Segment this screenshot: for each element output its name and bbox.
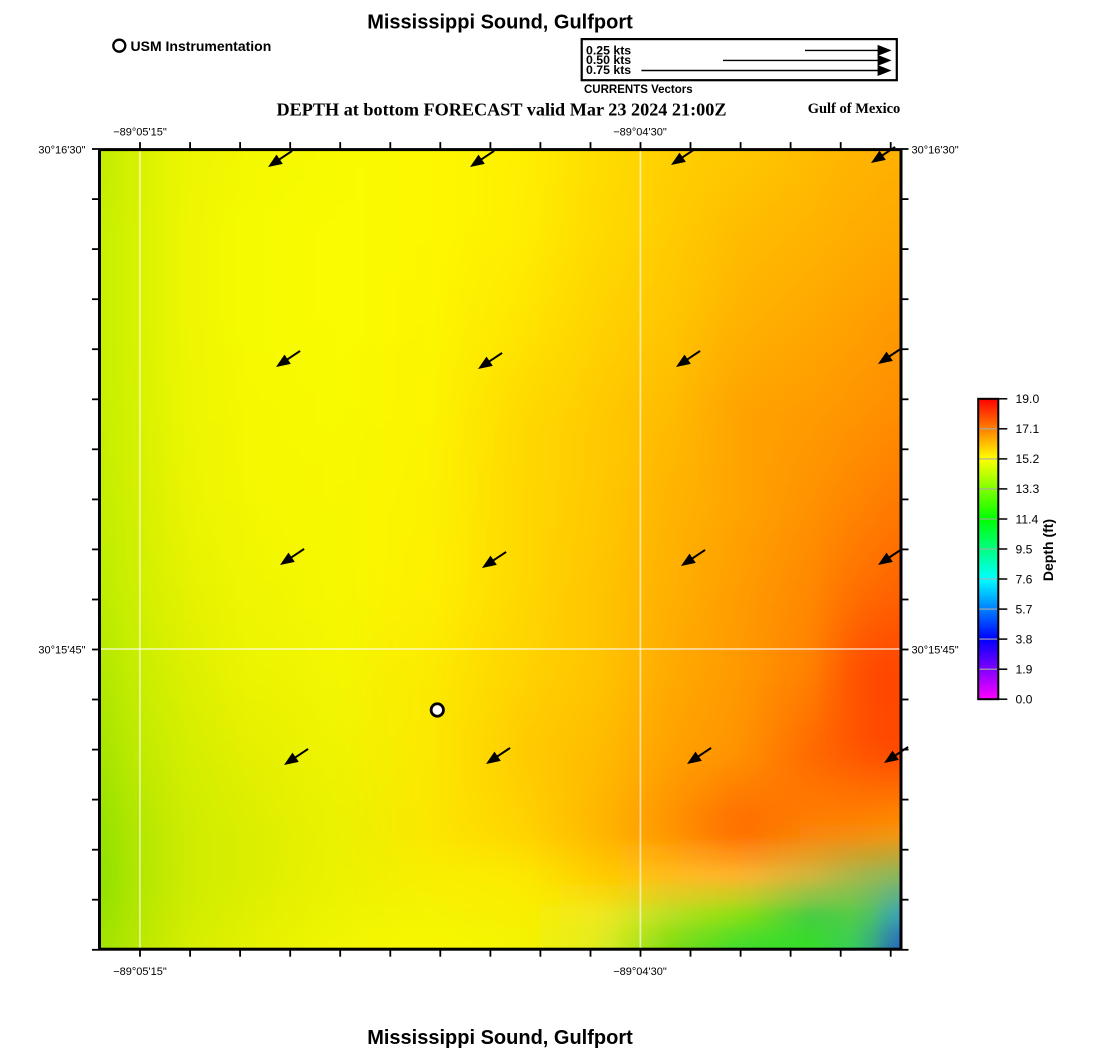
svg-text:17.1: 17.1 xyxy=(1016,422,1040,436)
svg-text:19.0: 19.0 xyxy=(1016,392,1040,406)
svg-text:9.5: 9.5 xyxy=(1016,542,1033,556)
svg-text:Mississippi Sound, Gulfport: Mississippi Sound, Gulfport xyxy=(367,12,633,34)
svg-text:−89°04'30": −89°04'30" xyxy=(613,127,667,139)
svg-text:USM Instrumentation: USM Instrumentation xyxy=(131,38,272,54)
svg-text:−89°05'15": −89°05'15" xyxy=(113,966,167,978)
svg-text:Depth (ft): Depth (ft) xyxy=(1040,519,1056,581)
svg-text:11.4: 11.4 xyxy=(1016,512,1039,526)
svg-text:30°15'45": 30°15'45" xyxy=(912,644,959,656)
svg-text:1.9: 1.9 xyxy=(1016,663,1033,677)
svg-text:13.3: 13.3 xyxy=(1016,482,1040,496)
svg-text:DEPTH at bottom FORECAST valid: DEPTH at bottom FORECAST valid Mar 23 20… xyxy=(277,99,727,119)
svg-text:Mississippi Sound, Gulfport: Mississippi Sound, Gulfport xyxy=(367,1027,633,1049)
svg-text:Gulf of Mexico: Gulf of Mexico xyxy=(808,101,901,117)
svg-text:30°15'45": 30°15'45" xyxy=(38,644,85,656)
svg-text:5.7: 5.7 xyxy=(1016,602,1033,616)
svg-text:0.75 kts: 0.75 kts xyxy=(586,63,631,77)
svg-text:CURRENTS Vectors: CURRENTS Vectors xyxy=(584,84,693,96)
svg-text:7.6: 7.6 xyxy=(1016,572,1033,586)
svg-text:15.2: 15.2 xyxy=(1016,452,1040,466)
svg-text:0.0: 0.0 xyxy=(1016,693,1033,707)
svg-text:−89°04'30": −89°04'30" xyxy=(613,966,667,978)
svg-text:3.8: 3.8 xyxy=(1016,632,1033,646)
svg-text:30°16'30": 30°16'30" xyxy=(912,144,959,156)
svg-text:30°16'30": 30°16'30" xyxy=(38,144,85,156)
svg-text:−89°05'15": −89°05'15" xyxy=(113,127,167,139)
